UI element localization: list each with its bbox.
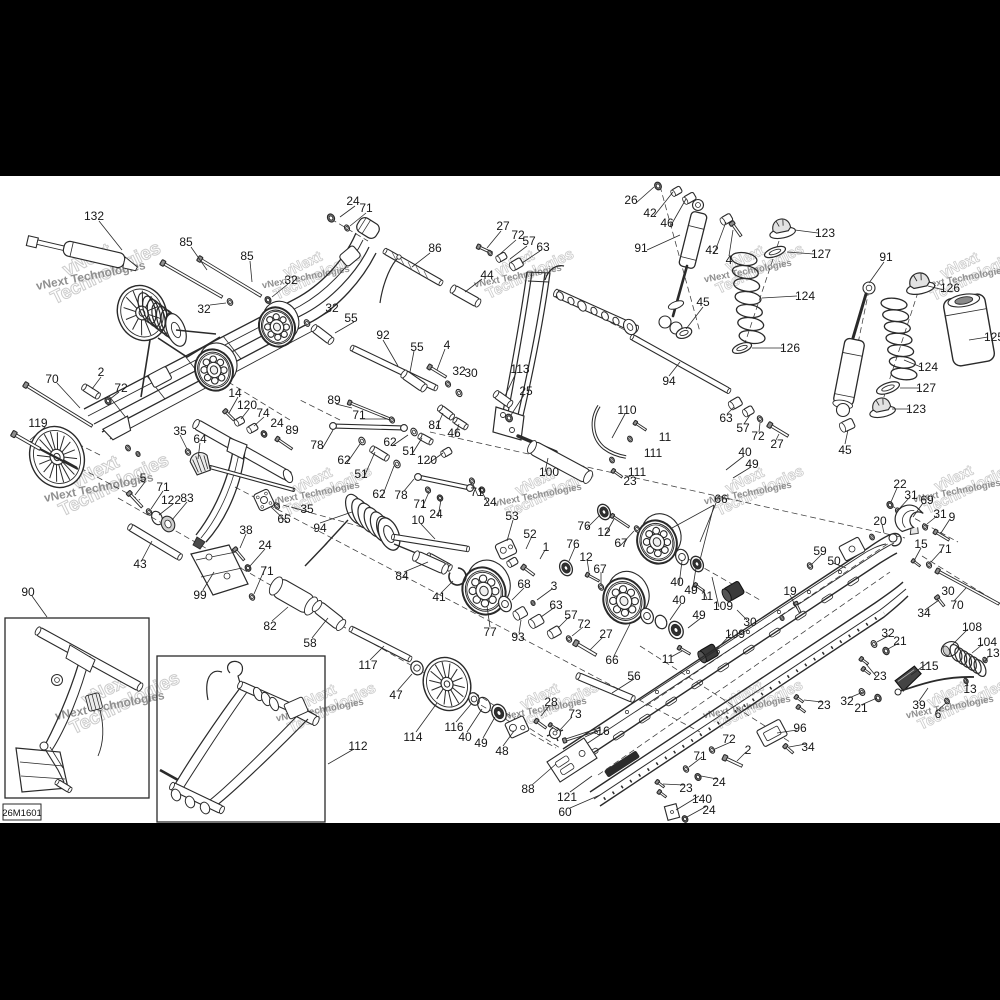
svg-text:24: 24 xyxy=(258,538,272,552)
svg-text:56: 56 xyxy=(627,669,641,683)
svg-text:58: 58 xyxy=(303,636,317,650)
svg-text:48: 48 xyxy=(495,744,509,758)
svg-text:113: 113 xyxy=(510,362,529,376)
svg-text:40: 40 xyxy=(458,730,472,744)
svg-text:92: 92 xyxy=(376,328,390,342)
svg-text:13: 13 xyxy=(986,646,1000,660)
svg-text:62: 62 xyxy=(372,487,386,501)
svg-text:91: 91 xyxy=(634,241,648,255)
svg-text:50: 50 xyxy=(827,554,841,568)
svg-text:72: 72 xyxy=(751,429,765,443)
svg-text:72: 72 xyxy=(722,732,736,746)
svg-text:124: 124 xyxy=(795,289,815,303)
svg-text:89: 89 xyxy=(285,423,299,437)
svg-text:71: 71 xyxy=(352,408,366,422)
svg-text:70: 70 xyxy=(950,598,964,612)
svg-text:57: 57 xyxy=(736,421,750,435)
svg-text:86: 86 xyxy=(428,241,442,255)
svg-text:117: 117 xyxy=(358,658,377,672)
svg-text:13: 13 xyxy=(963,682,977,696)
svg-text:34: 34 xyxy=(801,740,815,754)
svg-text:31: 31 xyxy=(904,488,918,502)
svg-text:51: 51 xyxy=(354,467,368,481)
svg-text:57: 57 xyxy=(522,234,536,248)
svg-text:23: 23 xyxy=(817,698,831,712)
svg-text:30: 30 xyxy=(743,615,757,629)
svg-text:85: 85 xyxy=(179,235,193,249)
svg-text:72: 72 xyxy=(577,617,591,631)
svg-text:24: 24 xyxy=(483,495,497,509)
svg-text:109: 109 xyxy=(713,599,733,613)
svg-text:72: 72 xyxy=(114,381,128,395)
svg-text:26: 26 xyxy=(624,193,638,207)
svg-text:78: 78 xyxy=(310,438,324,452)
svg-text:121: 121 xyxy=(557,790,577,804)
svg-text:12: 12 xyxy=(579,550,593,564)
svg-text:2: 2 xyxy=(98,365,105,379)
svg-text:82: 82 xyxy=(263,619,277,633)
svg-text:32: 32 xyxy=(197,302,211,316)
svg-text:53: 53 xyxy=(505,509,519,523)
svg-text:66: 66 xyxy=(605,653,619,667)
svg-text:16: 16 xyxy=(596,724,610,738)
svg-text:124: 124 xyxy=(918,360,938,374)
svg-text:35: 35 xyxy=(300,502,314,516)
svg-text:71: 71 xyxy=(156,480,170,494)
svg-text:24: 24 xyxy=(702,803,716,817)
svg-text:45: 45 xyxy=(696,295,710,309)
svg-text:2: 2 xyxy=(745,743,752,757)
svg-text:120: 120 xyxy=(417,453,437,467)
svg-text:34: 34 xyxy=(917,606,931,620)
svg-text:111: 111 xyxy=(644,446,663,460)
svg-text:109: 109 xyxy=(725,627,745,641)
svg-text:24: 24 xyxy=(270,416,284,430)
svg-text:31: 31 xyxy=(933,507,947,521)
svg-text:30: 30 xyxy=(941,584,955,598)
svg-text:24: 24 xyxy=(712,775,726,789)
svg-text:100: 100 xyxy=(539,465,559,479)
svg-text:38: 38 xyxy=(239,523,253,537)
svg-text:126: 126 xyxy=(780,341,800,355)
svg-text:21: 21 xyxy=(893,634,907,648)
svg-text:27: 27 xyxy=(770,437,784,451)
svg-text:10: 10 xyxy=(411,513,425,527)
svg-text:28: 28 xyxy=(544,695,558,709)
svg-text:11: 11 xyxy=(662,652,675,666)
svg-text:67: 67 xyxy=(593,562,607,576)
svg-text:119: 119 xyxy=(28,416,47,430)
svg-text:15: 15 xyxy=(914,537,928,551)
svg-text:110: 110 xyxy=(617,403,636,417)
svg-text:23: 23 xyxy=(623,474,637,488)
svg-text:3: 3 xyxy=(551,579,558,593)
svg-text:127: 127 xyxy=(916,381,936,395)
svg-text:93: 93 xyxy=(511,630,525,644)
svg-text:71: 71 xyxy=(693,749,707,763)
svg-text:5: 5 xyxy=(140,471,147,485)
svg-text:132: 132 xyxy=(84,209,104,223)
svg-text:47: 47 xyxy=(389,688,403,702)
svg-text:41: 41 xyxy=(432,590,446,604)
svg-text:91: 91 xyxy=(879,250,893,264)
svg-text:99: 99 xyxy=(193,588,207,602)
svg-text:27: 27 xyxy=(496,219,510,233)
svg-text:6: 6 xyxy=(935,707,942,721)
svg-text:40: 40 xyxy=(672,593,686,607)
svg-text:78: 78 xyxy=(394,488,408,502)
svg-text:115: 115 xyxy=(919,659,938,673)
svg-text:126: 126 xyxy=(940,281,960,295)
svg-text:67: 67 xyxy=(614,536,628,550)
svg-text:40: 40 xyxy=(670,575,684,589)
svg-text:25: 25 xyxy=(519,384,533,398)
svg-text:120: 120 xyxy=(237,398,257,412)
svg-text:45: 45 xyxy=(838,443,852,457)
svg-text:44: 44 xyxy=(480,268,494,282)
svg-text:24: 24 xyxy=(346,194,360,208)
svg-text:85: 85 xyxy=(240,249,254,263)
svg-text:12: 12 xyxy=(597,525,611,539)
svg-text:60: 60 xyxy=(558,805,572,819)
svg-text:122: 122 xyxy=(161,493,181,507)
svg-text:20: 20 xyxy=(873,514,887,528)
svg-text:71: 71 xyxy=(413,497,427,511)
svg-text:127: 127 xyxy=(811,247,831,261)
svg-text:55: 55 xyxy=(410,340,424,354)
svg-text:55: 55 xyxy=(344,311,358,325)
svg-text:24: 24 xyxy=(429,507,443,521)
svg-text:114: 114 xyxy=(403,730,422,744)
svg-text:43: 43 xyxy=(133,557,147,571)
svg-text:71: 71 xyxy=(260,564,274,578)
svg-text:123: 123 xyxy=(906,402,926,416)
svg-text:71: 71 xyxy=(938,542,952,556)
svg-text:70: 70 xyxy=(45,372,59,386)
svg-text:62: 62 xyxy=(383,435,397,449)
svg-text:23: 23 xyxy=(873,669,887,683)
svg-text:11: 11 xyxy=(701,589,714,603)
svg-text:83: 83 xyxy=(180,491,194,505)
svg-text:9: 9 xyxy=(949,510,956,524)
svg-text:23: 23 xyxy=(679,781,693,795)
svg-text:32: 32 xyxy=(840,694,854,708)
svg-text:69: 69 xyxy=(920,493,934,507)
svg-text:26M1601: 26M1601 xyxy=(2,808,42,819)
svg-text:76: 76 xyxy=(566,537,580,551)
svg-text:49: 49 xyxy=(474,736,488,750)
svg-text:11: 11 xyxy=(659,430,672,444)
svg-text:71: 71 xyxy=(359,201,373,215)
svg-text:68: 68 xyxy=(517,577,531,591)
svg-text:49: 49 xyxy=(684,583,698,597)
svg-text:42: 42 xyxy=(643,206,657,220)
svg-text:77: 77 xyxy=(483,625,497,639)
svg-text:46: 46 xyxy=(447,426,461,440)
svg-text:71: 71 xyxy=(470,485,484,499)
svg-text:66: 66 xyxy=(714,492,728,506)
svg-text:123: 123 xyxy=(815,226,835,240)
svg-text:96: 96 xyxy=(793,721,807,735)
svg-text:30: 30 xyxy=(464,366,478,380)
svg-text:63: 63 xyxy=(719,411,733,425)
